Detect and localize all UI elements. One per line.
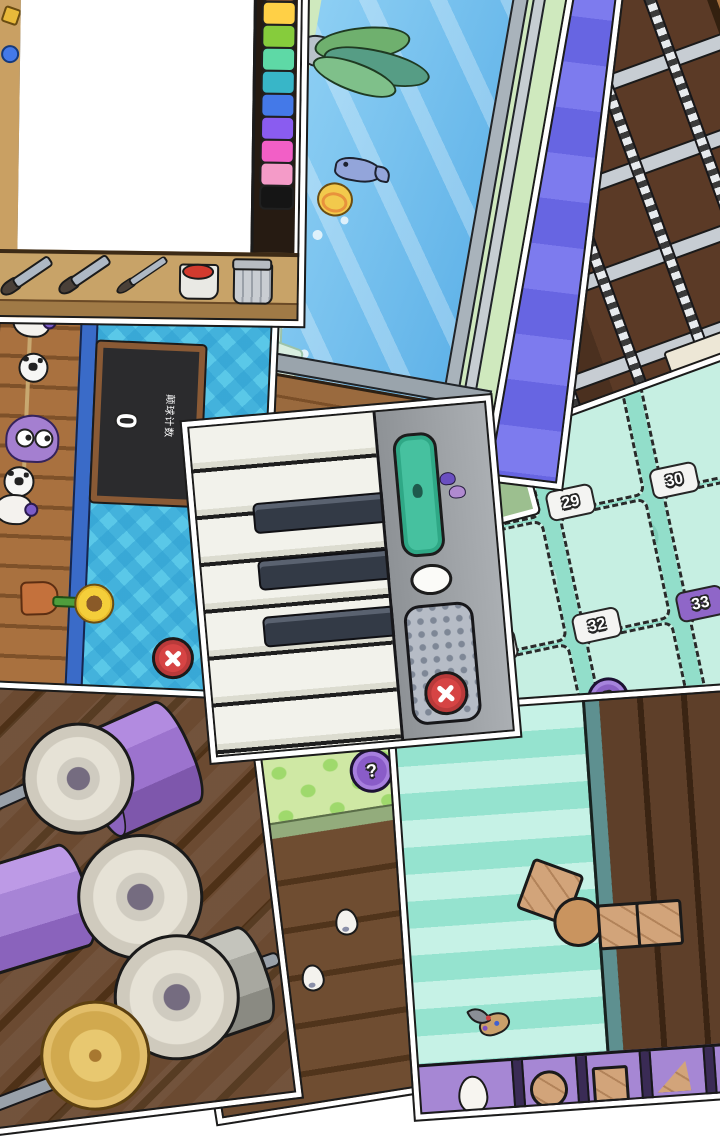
trash-can-icon[interactable]	[233, 262, 274, 305]
sticker-icon	[0, 5, 22, 27]
palette-swatch-8[interactable]	[260, 116, 295, 141]
octopus-eye	[15, 428, 35, 448]
red-paint	[182, 264, 214, 280]
sunflower-icon[interactable]	[73, 583, 115, 625]
octopus-eye	[34, 429, 54, 449]
palette-swatch-4[interactable]	[261, 24, 296, 49]
palette-swatch-7[interactable]	[260, 93, 295, 118]
tray-separator	[511, 1060, 526, 1111]
slot-number: 29	[560, 492, 581, 513]
help-label: ?	[365, 759, 379, 781]
paint-bucket-icon[interactable]	[179, 263, 219, 300]
palette-swatch-5[interactable]	[261, 47, 296, 72]
palette-swatch-6[interactable]	[261, 70, 296, 95]
painting-canvas[interactable]	[17, 0, 256, 255]
shuttlecock-icon[interactable]	[0, 493, 33, 526]
wood-block-square[interactable]	[635, 899, 684, 948]
tray-separator	[639, 1051, 654, 1102]
card-slot-32[interactable]: 32	[558, 497, 672, 637]
tray-separator	[702, 1047, 717, 1098]
tiny-bird-icon	[448, 485, 466, 499]
game-collage: { "painting": { "palette_colors": ["#F09…	[0, 0, 720, 1080]
score-value: 0	[110, 412, 143, 429]
sticker-icon	[1, 45, 19, 63]
brush-handle	[69, 253, 112, 288]
piano-minigame	[182, 395, 521, 763]
tray-shape-square[interactable]	[592, 1065, 630, 1103]
tray-shape-circle[interactable]	[529, 1069, 570, 1110]
small-bird-icon[interactable]	[471, 1004, 511, 1037]
palette-swatch-9[interactable]	[260, 139, 295, 164]
tool-shelf	[0, 249, 299, 325]
palette-swatch-10[interactable]	[259, 162, 294, 187]
tray-separator	[575, 1056, 590, 1107]
tray-shape-egg[interactable]	[457, 1075, 490, 1115]
close-button[interactable]	[151, 636, 195, 680]
slot-number: 30	[664, 470, 685, 491]
brush-handle	[11, 255, 54, 290]
trash-lid	[232, 258, 272, 271]
brush-handle	[128, 255, 169, 287]
slot-number: 33	[690, 593, 711, 614]
painting-minigame	[0, 0, 309, 326]
oval-button[interactable]	[409, 562, 454, 597]
score-label: 颠球计数	[162, 394, 179, 439]
palette-swatch-11[interactable]	[259, 185, 294, 210]
paintbrush-large-icon[interactable]	[0, 254, 51, 297]
tiny-bird-icon	[439, 472, 456, 486]
building-blocks-minigame	[387, 684, 720, 1120]
slot-number: 32	[586, 615, 607, 636]
paintbrush-thin-icon[interactable]	[114, 255, 167, 295]
palette-swatch-3[interactable]	[262, 1, 297, 26]
display-screen[interactable]	[392, 431, 447, 558]
color-palette	[250, 0, 298, 259]
tray-shape-triangle[interactable]	[655, 1061, 691, 1093]
paintbrush-medium-icon[interactable]	[55, 253, 110, 296]
